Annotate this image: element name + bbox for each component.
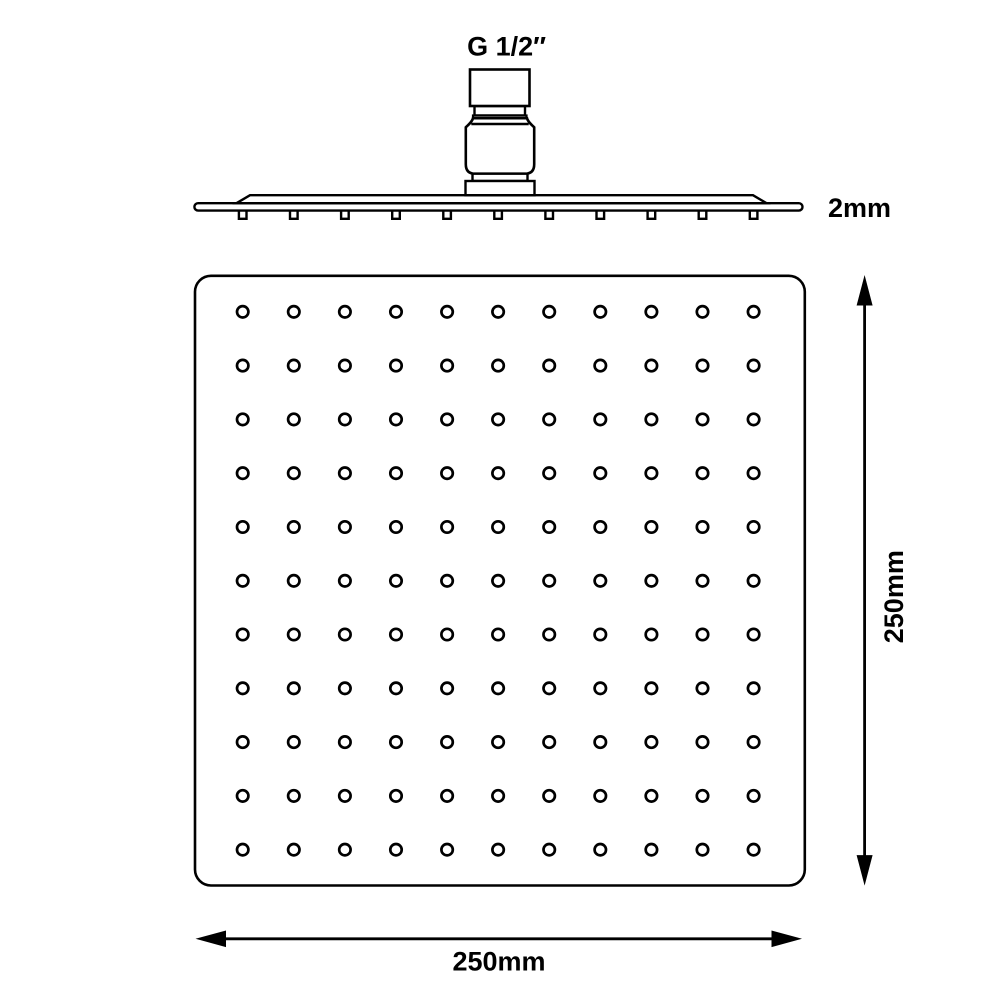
svg-text:2mm: 2mm (828, 193, 891, 223)
svg-text:250mm: 250mm (879, 550, 909, 643)
svg-text:G 1/2″: G 1/2″ (467, 31, 546, 61)
svg-text:250mm: 250mm (452, 947, 545, 977)
